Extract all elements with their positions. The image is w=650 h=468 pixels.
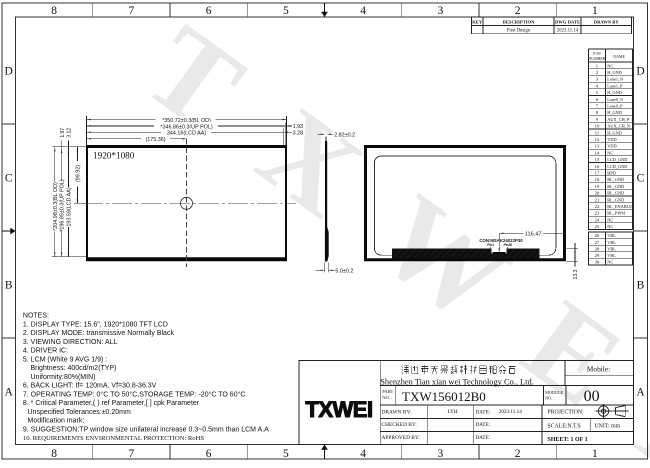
svg-text:PART: PART [382,389,393,394]
svg-text:KEY: KEY [472,19,483,24]
svg-text:Mobile:: Mobile: [587,365,610,374]
svg-text:Pin30: Pin30 [504,243,513,247]
svg-text:Shenzhen Tian xian wei Technol: Shenzhen Tian xian wei Technology Co., L… [380,377,533,386]
svg-text:TXW156012B0: TXW156012B0 [402,389,486,404]
svg-text:HPD: HPD [607,171,616,176]
svg-text:LYH: LYH [448,409,458,415]
svg-text:DRAWN BY: DRAWN BY [594,19,620,24]
svg-text:NC: NC [607,224,613,229]
svg-text:NAME: NAME [613,54,625,59]
svg-text:H_GND: H_GND [607,90,622,95]
svg-text:B: B [5,280,13,292]
svg-text:NC: NC [607,63,613,68]
svg-text:29: 29 [595,253,600,258]
svg-text:2: 2 [515,5,521,17]
svg-text:1920*1080: 1920*1080 [93,150,135,160]
svg-text:BL_GND: BL_GND [607,177,624,182]
svg-text:BL_PWM: BL_PWM [607,211,625,216]
svg-text:BL_GND: BL_GND [607,191,624,196]
svg-text:15: 15 [595,157,600,162]
svg-text:NO. :: NO. : [382,395,392,400]
svg-text:10. REQUIREMENTS ENVIRONMENTAL: 10. REQUIREMENTS ENVIRONMENTAL PROTECTIO… [23,435,204,442]
svg-text:DATE:: DATE: [476,422,491,428]
svg-text:BL_ENABLE: BL_ENABLE [607,204,632,209]
svg-text:P IN: P IN [593,51,600,56]
svg-text:SCALE:N.T.S: SCALE:N.T.S [547,423,580,429]
svg-text:26: 26 [595,233,600,238]
svg-text:VBL: VBL [607,240,616,245]
svg-text:SHEET: 1 OF 1: SHEET: 1 OF 1 [547,437,587,443]
svg-text:(175.36): (175.36) [145,137,165,143]
svg-text:DATE:: DATE: [476,409,491,415]
svg-text:(99.92): (99.92) [75,165,81,182]
svg-text:Modification mark:: Modification mark: [28,418,85,425]
svg-text:C: C [5,173,13,185]
svg-text:16: 16 [595,164,600,169]
svg-text:10: 10 [595,124,600,129]
svg-text:NC: NC [607,150,613,155]
svg-text:5: 5 [283,448,289,460]
svg-text:8: 8 [51,448,57,460]
svg-text:VDD: VDD [607,144,616,149]
svg-text:*196.85±0.3(UP POL): *196.85±0.3(UP POL) [60,179,66,232]
svg-text:CON:MSAK24022P30: CON:MSAK24022P30 [479,238,523,243]
svg-text:DESCRIPTION: DESCRIPTION [503,19,536,24]
svg-text:First Design: First Design [507,29,531,34]
svg-text:H_GND: H_GND [607,130,622,135]
svg-text:5.0±0.2: 5.0±0.2 [335,269,353,275]
svg-text:17: 17 [595,171,600,176]
svg-text:193.59(LCD AA): 193.59(LCD AA) [66,187,72,226]
svg-text:14: 14 [595,150,600,155]
svg-text:12: 12 [595,137,600,142]
svg-text:DWG DATE: DWG DATE [555,19,580,24]
svg-text:6: 6 [206,5,212,17]
svg-text:D: D [636,66,644,78]
svg-text:Lane0_N: Lane0_N [607,97,623,102]
svg-text:1.93: 1.93 [293,124,304,130]
svg-text:1: 1 [592,448,598,460]
svg-text:21: 21 [595,197,600,202]
svg-text:*204.98±0.3(BL OD): *204.98±0.3(BL OD) [53,182,59,231]
svg-text:C: C [637,173,645,185]
svg-text:Uniformity:80%(MIN): Uniformity:80%(MIN) [31,374,96,381]
svg-text:27: 27 [595,240,600,245]
svg-text:13: 13 [595,144,600,149]
svg-text:AUX_CH_P: AUX_CH_P [607,117,630,122]
svg-text:D: D [5,66,13,78]
svg-text:18: 18 [595,177,600,182]
svg-text:3.12: 3.12 [67,128,73,138]
svg-text:22: 22 [595,204,600,209]
svg-text:3: 3 [438,448,444,460]
svg-text:8. * Critical Parameter,( ) r: 8. * Critical Parameter,( ) ref Paramete… [23,400,200,407]
svg-text:2023.11.14: 2023.11.14 [499,409,523,415]
svg-text:2023.11.14: 2023.11.14 [557,29,579,34]
svg-text:Lane1_N: Lane1_N [607,77,623,82]
svg-text:VDD: VDD [607,137,616,142]
svg-text:A: A [636,386,645,398]
svg-text:11: 11 [595,130,600,135]
svg-text:Unspecified Tolerances:±0.20mm: Unspecified Tolerances:±0.20mm [28,409,131,416]
svg-text:13.3: 13.3 [573,269,579,279]
svg-text:TXWEI: TXWEI [305,397,372,422]
svg-text:5: 5 [283,5,289,17]
svg-text:7. OPERATING TEMP: 0°C TO 50°C: 7. OPERATING TEMP: 0°C TO 50°C,STORAGE T… [23,390,246,398]
svg-text:4: 4 [360,5,366,17]
svg-text:DRAWN BY:: DRAWN BY: [382,409,412,415]
svg-text:8: 8 [51,5,57,17]
svg-text:1.97: 1.97 [60,128,66,138]
svg-text:4. DRIVER IC:: 4. DRIVER IC: [23,348,68,355]
svg-text:Lane1_P: Lane1_P [607,83,623,88]
svg-text:23: 23 [595,211,600,216]
svg-text:3. VIEWING DIRECTION: ALL: 3. VIEWING DIRECTION: ALL [23,339,118,346]
svg-text:5. LCM (White 9 AVG 1/9) :: 5. LCM (White 9 AVG 1/9) : [23,356,107,363]
svg-text:VBL: VBL [607,233,616,238]
svg-text:Lane0_P: Lane0_P [607,104,623,109]
svg-text:BL_GND: BL_GND [607,184,624,189]
svg-text:NUMBER: NUMBER [588,56,605,61]
svg-text:9. SUGGESTION:TP window size u: 9. SUGGESTION:TP window size unilateral … [23,426,269,433]
svg-text:7: 7 [129,448,135,460]
svg-text:1: 1 [592,5,598,17]
svg-text:2: 2 [515,448,521,460]
svg-text:19: 19 [595,184,600,189]
svg-text:116.47: 116.47 [525,232,542,238]
svg-text:VBL: VBL [607,253,616,258]
svg-text:H_GND: H_GND [607,70,622,75]
svg-text:DATE:: DATE: [476,435,491,441]
svg-text:25: 25 [595,224,600,229]
svg-text:NOTES:: NOTES: [23,313,49,320]
svg-text:A: A [5,386,14,398]
svg-text:7: 7 [129,5,135,17]
svg-text:344.16(LCD AA): 344.16(LCD AA) [167,131,206,137]
svg-text:2.82±0.2: 2.82±0.2 [334,132,355,138]
svg-text:30: 30 [595,260,600,265]
svg-text:6: 6 [206,448,212,460]
svg-text:28: 28 [595,246,600,251]
svg-text:4: 4 [360,448,366,460]
svg-text:6. BACK LIGHT: If= 120mA, Vf=3: 6. BACK LIGHT: If= 120mA, Vf=30.8-36.3V [23,383,157,390]
svg-text:2. DISPLAY MODE: transmissive: 2. DISPLAY MODE: transmissive Normally B… [23,330,175,337]
svg-text:H_GND: H_GND [607,110,622,115]
svg-text:NC: NC [607,260,613,265]
svg-text:Pin1: Pin1 [487,243,494,247]
svg-text:PROJECTION:: PROJECTION: [547,410,584,416]
svg-text:UNIT: mm: UNIT: mm [595,423,621,429]
svg-text:1. DISPLAY TYPE: 15.6", 1920*1: 1. DISPLAY TYPE: 15.6", 1920*1080 TFT LC… [23,321,168,328]
svg-text:Brightness: 400cd/m2(TYP): Brightness: 400cd/m2(TYP) [31,365,117,372]
svg-text:BL_GND: BL_GND [607,197,624,202]
svg-text:3: 3 [438,5,444,17]
svg-text:MODULE: MODULE [545,390,563,395]
svg-text:VBL: VBL [607,246,616,251]
svg-text:B: B [637,280,645,292]
svg-text:00: 00 [584,388,600,405]
svg-text:CHECKED BY:: CHECKED BY: [382,422,418,428]
svg-text:3.28: 3.28 [293,130,304,136]
svg-text:LCD_GND: LCD_GND [607,157,627,162]
svg-text:AUX_CH_N: AUX_CH_N [607,124,630,129]
svg-text:LCD_GND: LCD_GND [607,164,627,169]
svg-text:20: 20 [595,191,600,196]
svg-text:APPROVED BY:: APPROVED BY: [382,435,421,441]
svg-text:24: 24 [595,217,600,222]
svg-text:NO. :: NO. : [545,396,554,401]
svg-text:NC: NC [607,217,613,222]
